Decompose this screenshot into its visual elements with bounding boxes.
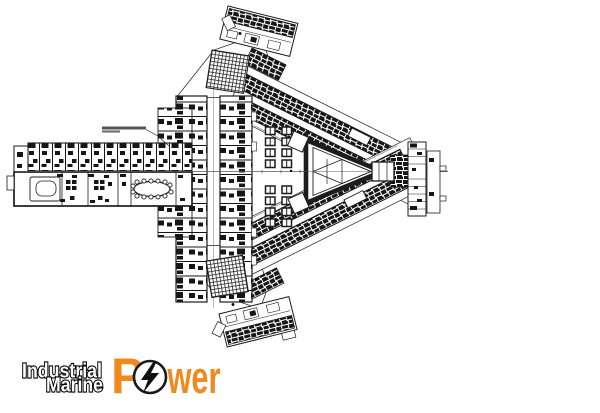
logo-word-marine: Marine: [46, 375, 103, 397]
column-dot-bottom: [232, 303, 235, 306]
floor-plan-drawing: Industrial Marine P wer: [0, 0, 600, 413]
company-logo: Industrial Marine P wer: [22, 348, 221, 404]
stair-hatch-top: [206, 50, 249, 93]
stair-hatch-bottom: [206, 255, 248, 297]
logo-power-wer: wer: [167, 352, 221, 403]
conference-table: [131, 179, 173, 199]
column-dot-top: [239, 32, 242, 35]
right-tip: [408, 142, 446, 216]
left-wing-upper-strip: [28, 143, 192, 171]
corner-rooms-bottom: [158, 206, 192, 237]
corner-rooms-top: [158, 108, 192, 143]
screenshot-root: Industrial Marine P wer: [0, 0, 600, 413]
bottom-wing-block: [208, 297, 299, 357]
left-wing: [7, 143, 192, 206]
apex-vestibule: [372, 162, 394, 181]
lightning-bolt-icon: [134, 361, 166, 393]
